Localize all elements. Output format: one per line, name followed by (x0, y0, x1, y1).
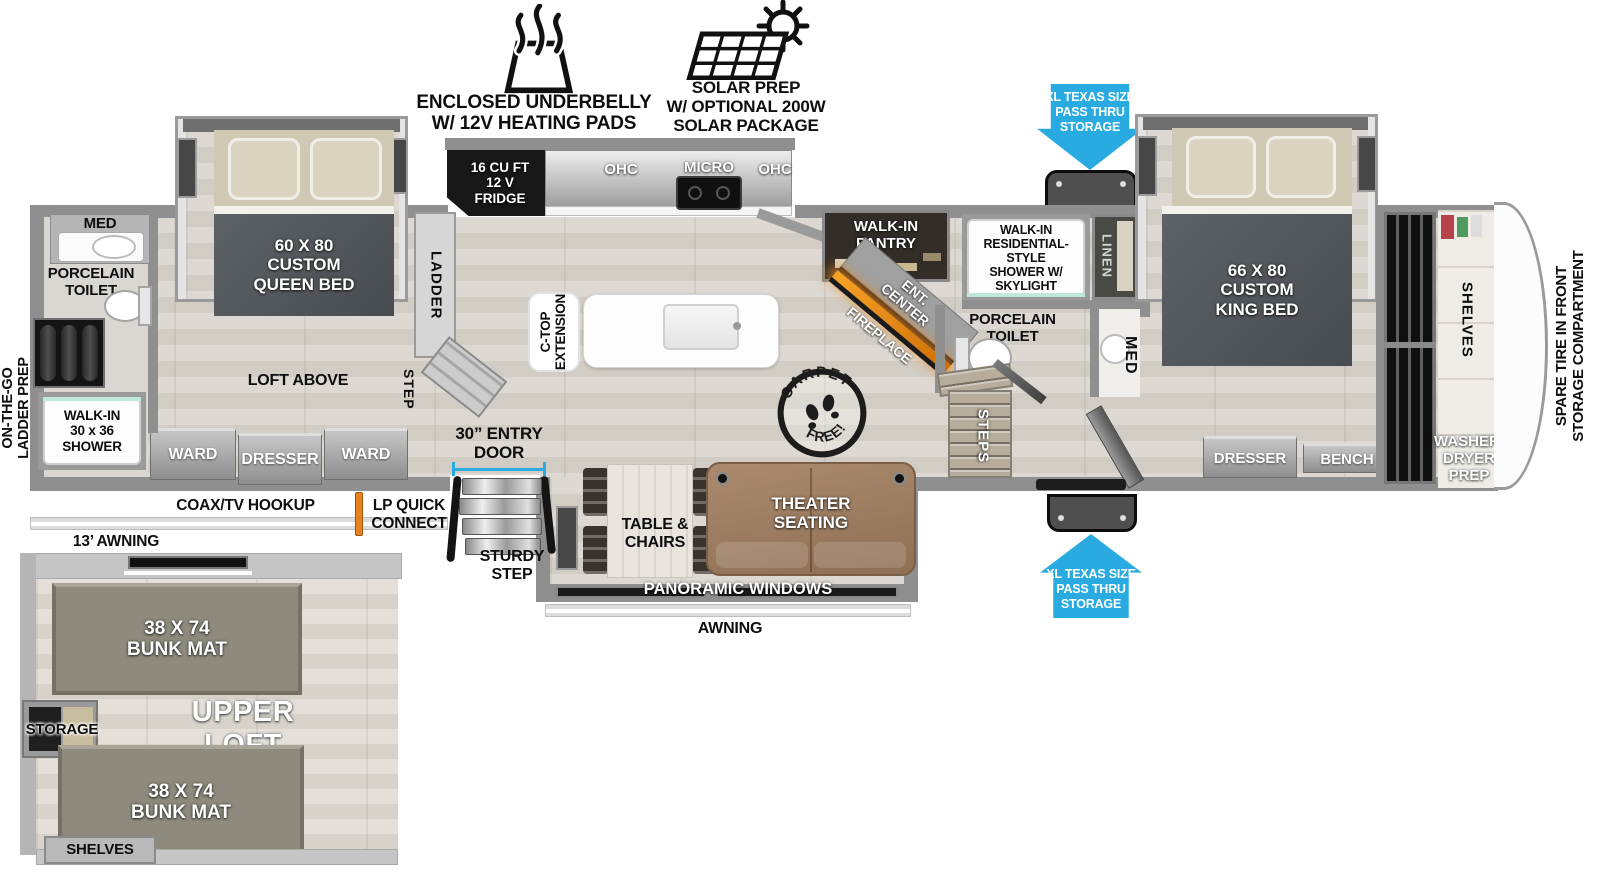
ladder-prep-label: ON-THE-GO LADDER PREP (0, 328, 36, 488)
cupholder-icon (716, 472, 729, 485)
sink-icon (92, 235, 136, 259)
shelf-item (1471, 215, 1482, 237)
shelf-item (1441, 215, 1454, 239)
toilet-tank (138, 286, 152, 326)
wardrobe-right: WARD (324, 428, 408, 480)
burner (716, 186, 730, 200)
pillow (310, 138, 382, 200)
sheet-line (1162, 206, 1352, 214)
entry-door-label: 30” ENTRY DOOR (428, 424, 570, 462)
ohc-right-label: OHC (744, 162, 806, 179)
shelf-item (1457, 217, 1468, 237)
coax-tv-hookup-label: COAX/TV HOOKUP (168, 497, 323, 515)
pantry-label: WALK-IN PANTRY (825, 219, 947, 253)
closet-divider (1384, 342, 1436, 348)
sturdy-step-label: STURDY STEP (462, 548, 562, 584)
window (1137, 136, 1157, 196)
dinette-chair (583, 468, 609, 516)
burner (688, 186, 702, 200)
step-tread (462, 518, 542, 535)
linen-label: LINEN (1097, 221, 1117, 291)
theater-seating: THEATER SEATING (706, 462, 916, 576)
awning-13-label: 13’ AWNING (62, 533, 170, 551)
ladder-label: LADDER (416, 214, 454, 356)
seat-cushion (716, 542, 808, 568)
king-bed: 66 X 80 CUSTOM KING BED (1162, 214, 1352, 366)
shower-glass (43, 397, 141, 401)
wardrobe-left: WARD (150, 428, 236, 480)
underbelly-label: ENCLOSED UNDERBELLY W/ 12V HEATING PADS (415, 92, 653, 135)
entry-measure-line (452, 468, 546, 471)
table-chairs-label: TABLE & CHAIRS (585, 516, 725, 552)
wall (962, 300, 1140, 309)
bunk-mat-top-label: 38 X 74 BUNK MAT (127, 618, 227, 661)
awning-rail (545, 604, 911, 617)
lp-connector-icon (355, 492, 363, 536)
rear-shower-label: WALK-IN 30 x 36 SHOWER (62, 408, 122, 454)
med-label-rear: MED (50, 216, 150, 233)
queen-bed-label: 60 X 80 CUSTOM QUEEN BED (253, 236, 354, 294)
screw-icon (1058, 515, 1064, 521)
rear-shower: WALK-IN 30 x 36 SHOWER (38, 392, 146, 470)
pillow (1266, 136, 1336, 198)
loft-skylight (128, 556, 248, 569)
loft-skylight-sill (124, 571, 252, 575)
sheet-line (214, 206, 394, 214)
micro-label: MICRO (672, 160, 746, 177)
main-shower: WALK-IN RESIDENTIAL-STYLE SHOWER W/ SKYL… (962, 214, 1090, 302)
awning-label: AWNING (688, 620, 772, 638)
pass-thru-door-bottom (1047, 494, 1137, 532)
wall (445, 138, 795, 150)
window (1357, 136, 1377, 192)
steps-main: STEPS (948, 390, 1012, 478)
entry-mat (1036, 479, 1126, 490)
linen-shelves (1117, 221, 1133, 291)
pantry-shelf-item (923, 253, 941, 261)
linen-cabinet: LINEN (1092, 214, 1140, 300)
bunk-mat-top: 38 X 74 BUNK MAT (52, 583, 302, 695)
island-sink-icon (663, 304, 739, 350)
solar-prep-label: SOLAR PREP W/ OPTIONAL 200W SOLAR PACKAG… (650, 78, 842, 136)
storage-label: STORAGE (16, 722, 108, 739)
pass-thru-arrow-top: XL TEXAS SIZE PASS THRU STORAGE (1037, 84, 1143, 170)
measure-tick (543, 462, 546, 476)
dresser-front: DRESSER (1203, 436, 1297, 478)
wall (1376, 205, 1384, 491)
lp-quick-connect-label: LP QUICK CONNECT (366, 497, 452, 532)
ohc-left-label: OHC (588, 162, 654, 179)
step-label: STEP (398, 358, 418, 420)
front-cap (1494, 202, 1548, 490)
measure-tick (452, 462, 455, 476)
steps-label: STEPS (972, 396, 992, 476)
pass-thru-arrow-bottom: XL TEXAS SIZE PASS THRU STORAGE (1040, 534, 1142, 618)
underbelly-heat-icon (468, 4, 600, 94)
window (177, 138, 197, 198)
shelves-label-front: SHELVES (1455, 262, 1477, 378)
wardrobe-slats (33, 318, 105, 388)
slat (40, 325, 56, 381)
faucet-icon (733, 322, 741, 330)
dresser-rear: DRESSER (238, 433, 322, 485)
pass-thru-door-top (1045, 170, 1137, 208)
carpet-free-stamp: CARPET FREE! (766, 357, 877, 468)
cooktop-icon (676, 176, 742, 210)
bunk-mat-bottom-label: 38 X 74 BUNK MAT (131, 781, 231, 824)
med-label-main: MED (1120, 318, 1140, 392)
fridge-label: 16 CU FT 12 V FRIDGE (463, 160, 530, 206)
step-tread (462, 478, 542, 495)
kitchen-counter (545, 150, 792, 208)
cupholder-icon (893, 472, 906, 485)
pillow (1186, 136, 1256, 198)
counter-face (545, 206, 792, 216)
queen-bed: 60 X 80 CUSTOM QUEEN BED (214, 214, 394, 316)
floorplan-diagram: ENCLOSED UNDERBELLY W/ 12V HEATING PADS … (0, 0, 1600, 884)
loft-above-label: LOFT ABOVE (228, 372, 368, 390)
screw-icon (1120, 515, 1126, 521)
screw-icon (1120, 181, 1126, 187)
seat-cushion (814, 542, 906, 568)
refrigerator: 16 CU FT 12 V FRIDGE (447, 150, 545, 216)
ctop-extension-label: C-TOP EXTENSION (531, 284, 575, 380)
pillow (228, 138, 300, 200)
wall (1090, 300, 1099, 397)
shower-glass (967, 293, 1085, 297)
spare-tire-label: SPARE TIRE IN FRONT STORAGE COMPARTMENT (1549, 196, 1593, 496)
solar-panel-icon (686, 0, 812, 80)
step-tread (459, 498, 541, 515)
screw-icon (1056, 181, 1062, 187)
slat (82, 325, 98, 381)
panoramic-windows-label: PANORAMIC WINDOWS (608, 580, 868, 599)
loft-shelves: SHELVES (44, 836, 156, 864)
king-bed-label: 66 X 80 CUSTOM KING BED (1215, 261, 1298, 319)
loft-shelves-label: SHELVES (66, 842, 134, 859)
theater-label: THEATER SEATING (708, 494, 914, 532)
slat (61, 325, 77, 381)
main-shower-label: WALK-IN RESIDENTIAL-STYLE SHOWER W/ SKYL… (969, 223, 1083, 294)
